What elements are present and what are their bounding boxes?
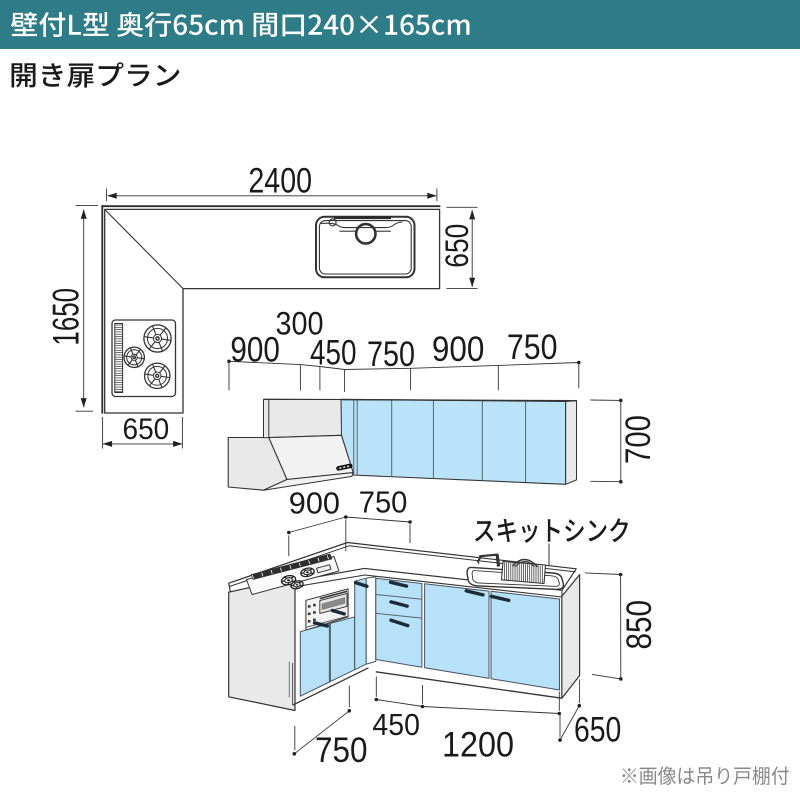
svg-text:650: 650 <box>122 413 169 446</box>
svg-text:650: 650 <box>574 710 621 750</box>
svg-text:900: 900 <box>230 331 280 370</box>
svg-text:1650: 1650 <box>46 288 87 346</box>
svg-text:2400: 2400 <box>248 162 312 201</box>
svg-text:650: 650 <box>439 224 475 268</box>
svg-text:750: 750 <box>367 335 415 374</box>
svg-text:900: 900 <box>432 329 485 369</box>
svg-text:450: 450 <box>372 708 420 742</box>
svg-text:750: 750 <box>315 731 368 770</box>
svg-text:750: 750 <box>507 327 558 367</box>
svg-text:900: 900 <box>289 486 340 521</box>
svg-text:700: 700 <box>618 415 658 464</box>
svg-text:450: 450 <box>310 334 357 373</box>
svg-text:1200: 1200 <box>442 726 514 765</box>
svg-text:750: 750 <box>359 485 408 520</box>
svg-text:850: 850 <box>620 600 659 650</box>
